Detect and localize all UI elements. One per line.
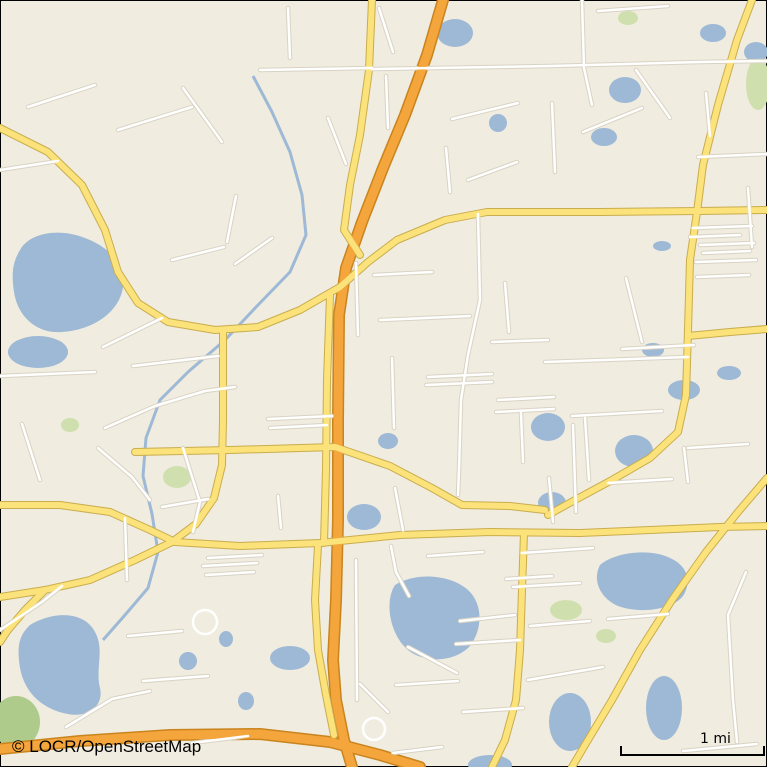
scale-label: 1 mi	[700, 731, 731, 747]
attribution-text: © LOCR/OpenStreetMap	[12, 737, 201, 757]
scale-bar	[620, 744, 766, 758]
map-graphics	[0, 0, 767, 767]
scale-bar-right-tick	[763, 746, 765, 756]
scale-bar-line	[620, 754, 765, 756]
map-canvas[interactable]: © LOCR/OpenStreetMap 1 mi	[0, 0, 767, 767]
